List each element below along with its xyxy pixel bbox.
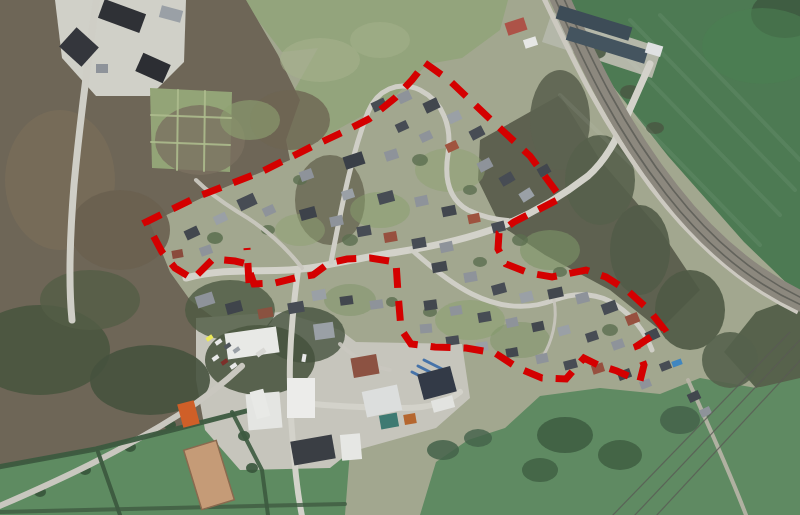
allotment-grid-2 bbox=[204, 91, 205, 171]
tree-blob-25 bbox=[598, 440, 642, 470]
building-66 bbox=[423, 299, 437, 311]
building-82 bbox=[287, 378, 315, 418]
tree-blob-15 bbox=[702, 332, 758, 388]
tree-blob-41 bbox=[473, 257, 487, 267]
tree-blob-38 bbox=[412, 154, 428, 166]
building-84 bbox=[340, 433, 362, 461]
tree-blob-16 bbox=[220, 100, 280, 140]
tree-blob-34 bbox=[207, 232, 223, 244]
tree-blob-28 bbox=[427, 440, 459, 460]
tree-blob-51 bbox=[246, 463, 258, 473]
building-67 bbox=[420, 323, 433, 333]
aerial-map-screenshot bbox=[0, 0, 800, 515]
tree-blob-22 bbox=[275, 214, 325, 246]
tree-blob-43 bbox=[602, 324, 618, 336]
tree-blob-1 bbox=[70, 190, 170, 270]
aerial-photo bbox=[0, 0, 800, 515]
tree-blob-39 bbox=[463, 185, 477, 195]
building-85 bbox=[313, 322, 335, 341]
tree-blob-27 bbox=[522, 458, 558, 482]
building-49 bbox=[369, 299, 383, 310]
tree-blob-19 bbox=[520, 230, 580, 270]
tree-blob-24 bbox=[537, 417, 593, 453]
tree-blob-29 bbox=[464, 429, 492, 447]
allotment-grid-1 bbox=[177, 90, 178, 170]
tree-blob-26 bbox=[660, 406, 700, 434]
building-48 bbox=[339, 295, 353, 306]
tree-blob-36 bbox=[342, 234, 358, 246]
tree-blob-31 bbox=[350, 22, 410, 58]
tree-blob-9 bbox=[40, 270, 140, 330]
building-91 bbox=[403, 413, 417, 425]
tree-blob-30 bbox=[280, 38, 360, 82]
tree-blob-40 bbox=[512, 234, 528, 246]
building-3 bbox=[96, 64, 108, 73]
